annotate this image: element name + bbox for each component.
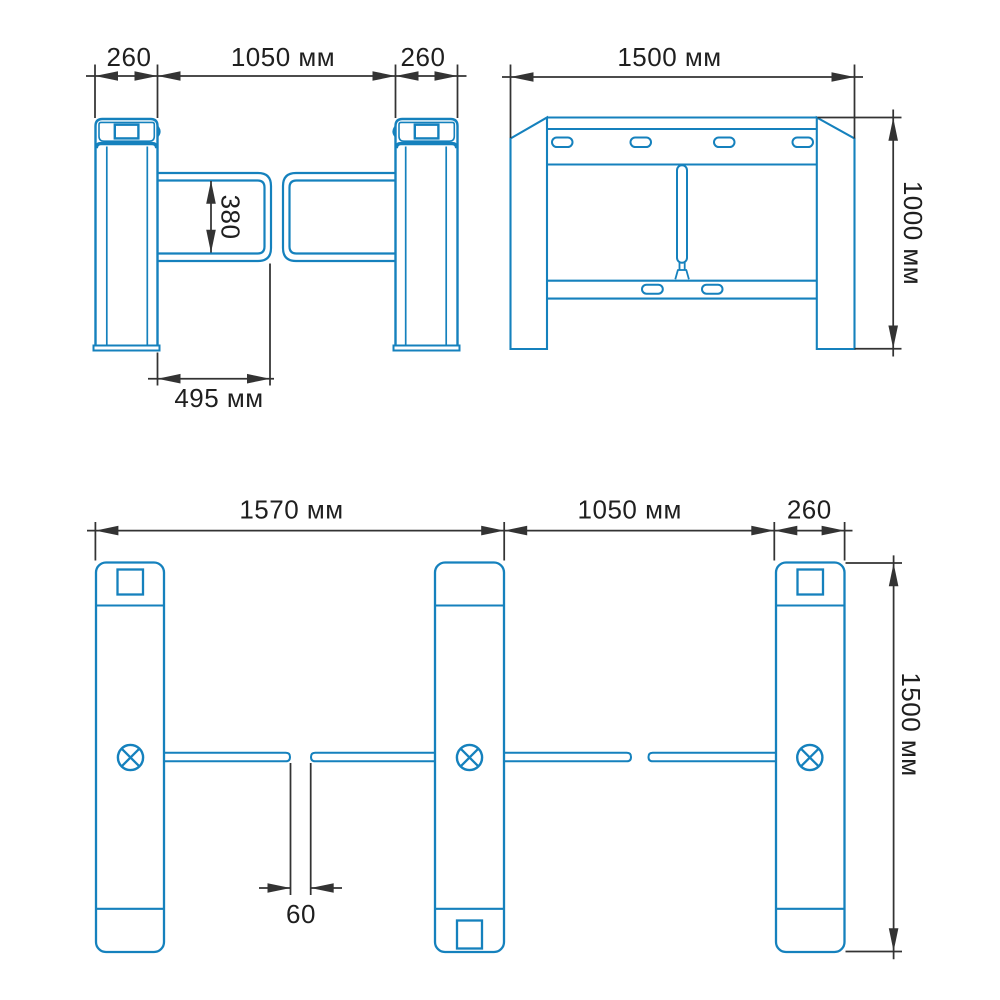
svg-text:1050 мм: 1050 мм: [578, 495, 682, 525]
svg-text:60: 60: [286, 899, 316, 929]
svg-text:1500 мм: 1500 мм: [617, 42, 721, 72]
svg-text:260: 260: [107, 42, 152, 72]
svg-text:260: 260: [401, 42, 446, 72]
svg-text:1000 мм: 1000 мм: [898, 181, 928, 285]
svg-text:1500 мм: 1500 мм: [896, 672, 926, 776]
svg-text:1050 мм: 1050 мм: [231, 42, 335, 72]
svg-text:1570 мм: 1570 мм: [239, 495, 343, 525]
svg-text:380: 380: [216, 195, 246, 240]
svg-text:260: 260: [787, 495, 832, 525]
svg-text:495 мм: 495 мм: [174, 383, 263, 413]
